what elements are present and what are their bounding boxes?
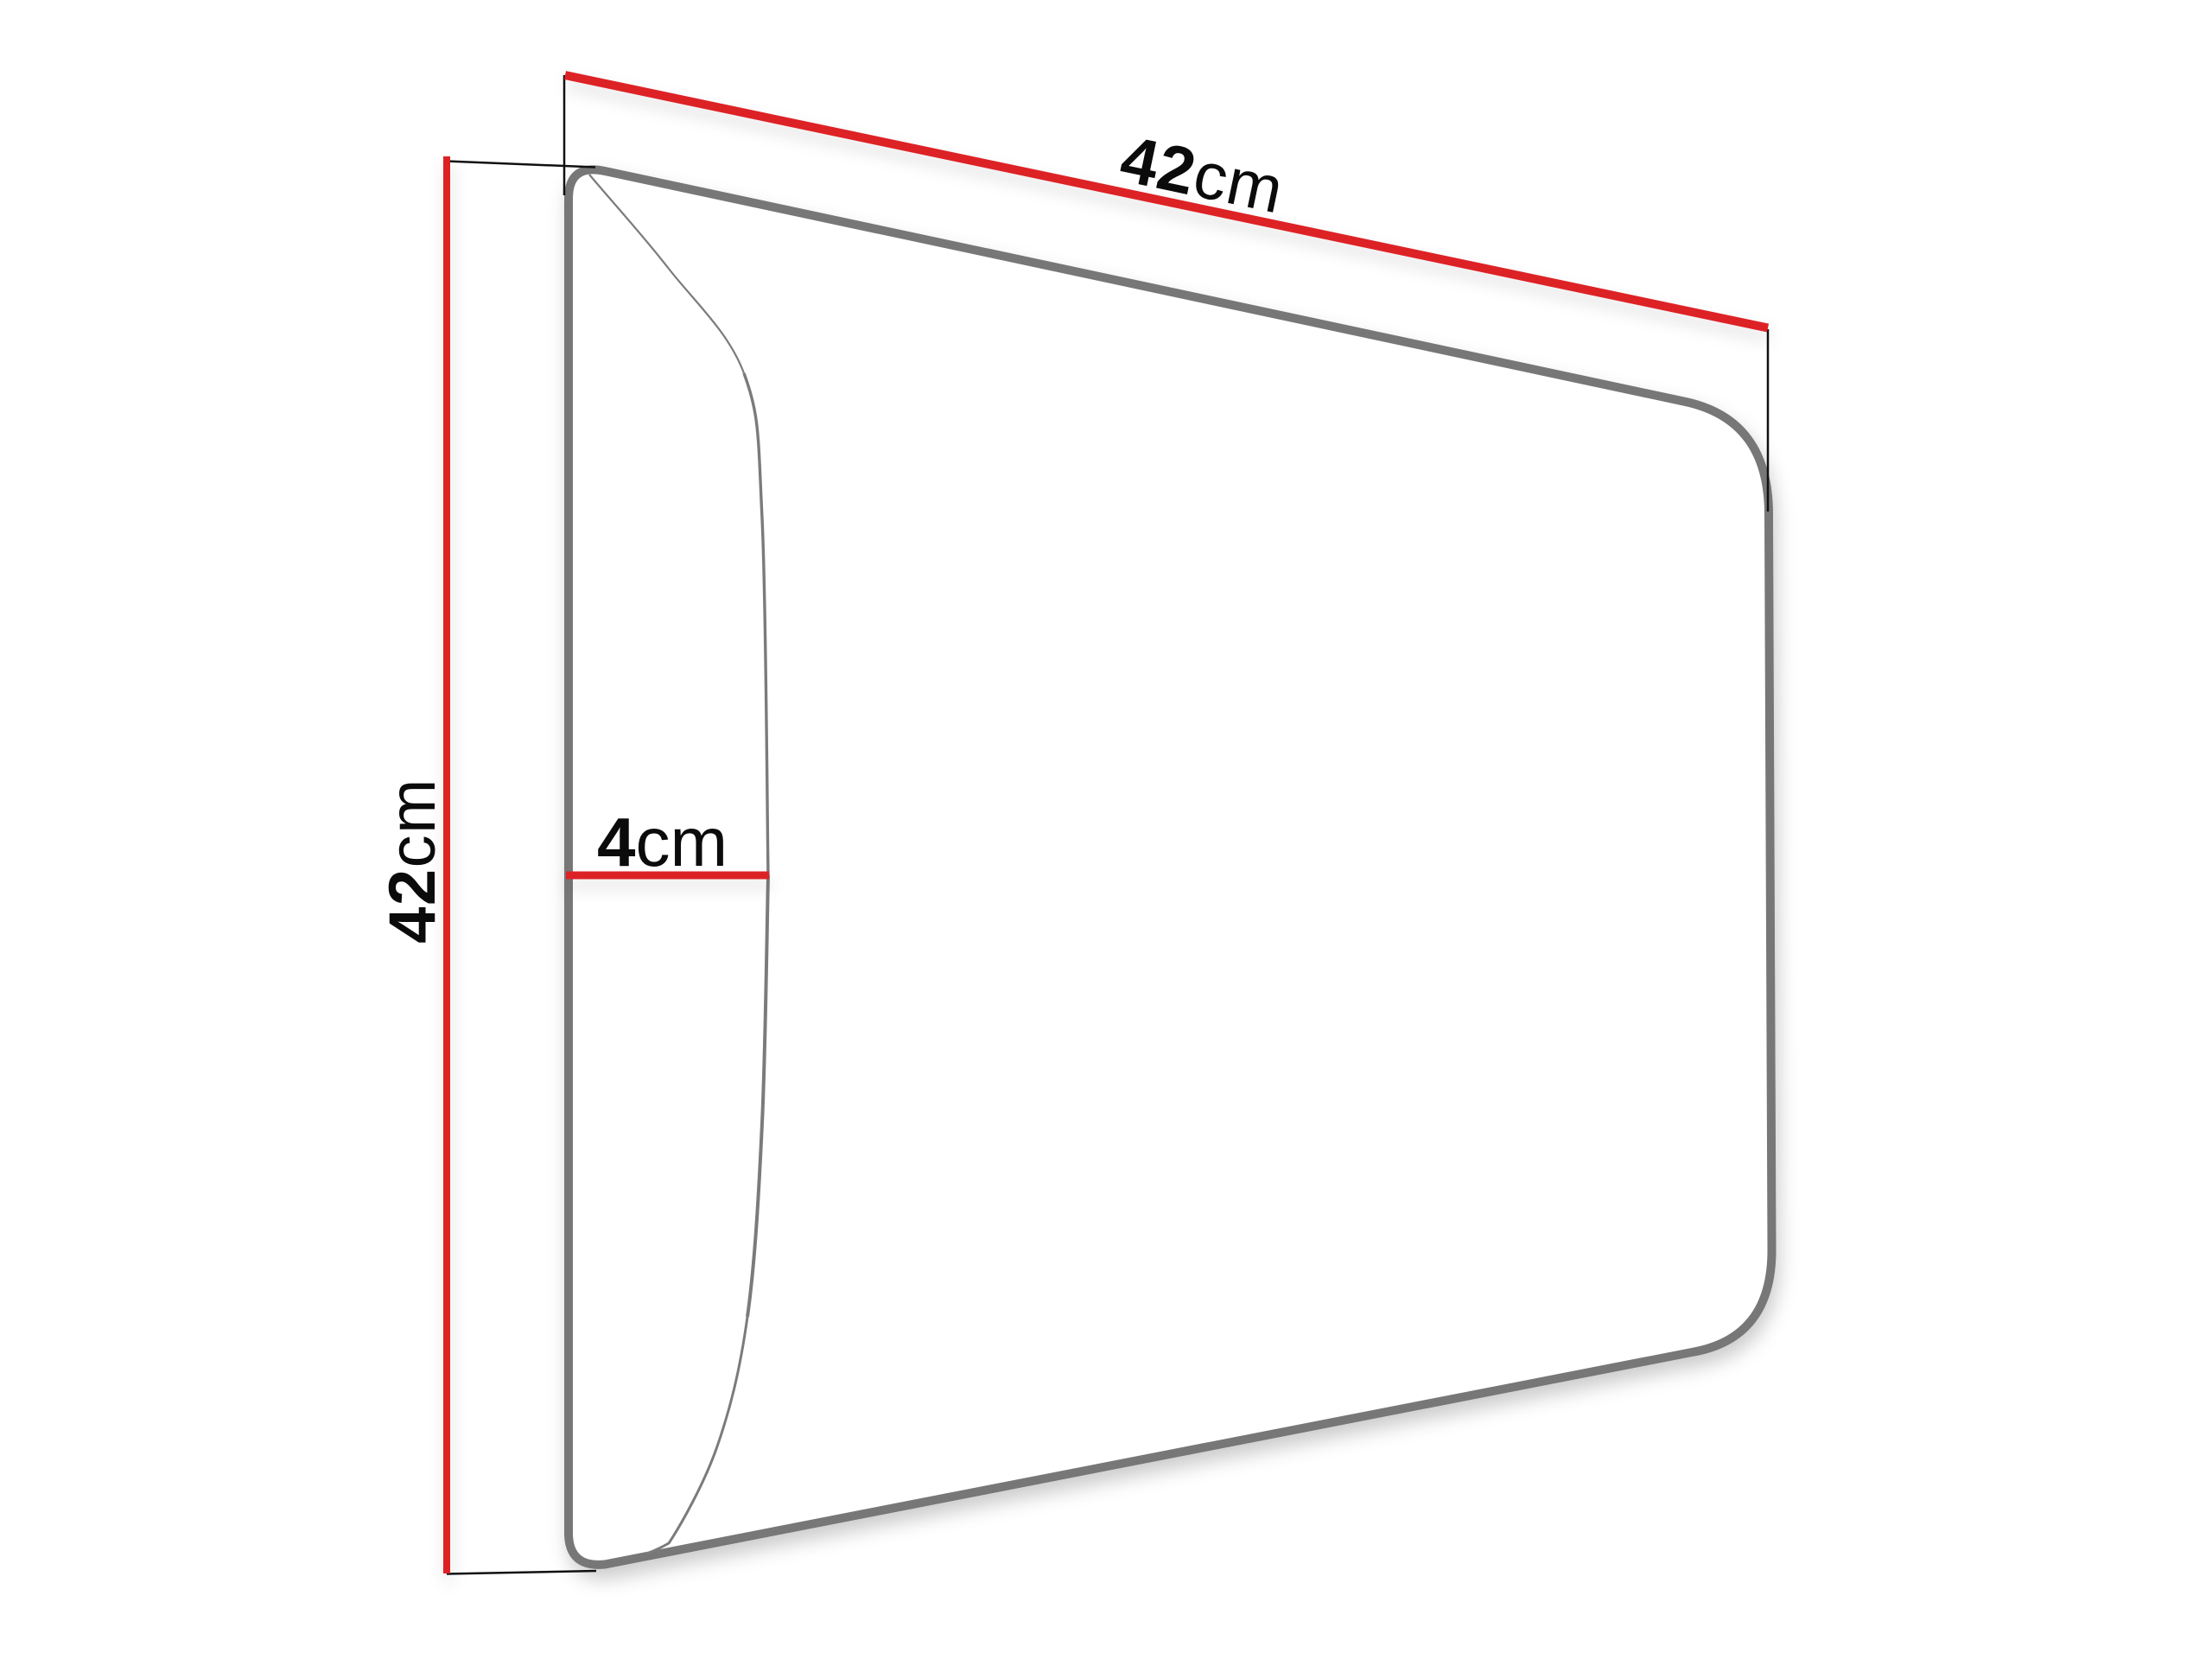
svg-text:42cm: 42cm xyxy=(376,778,449,944)
svg-text:4cm: 4cm xyxy=(597,804,728,880)
svg-text:42cm: 42cm xyxy=(1115,122,1290,227)
